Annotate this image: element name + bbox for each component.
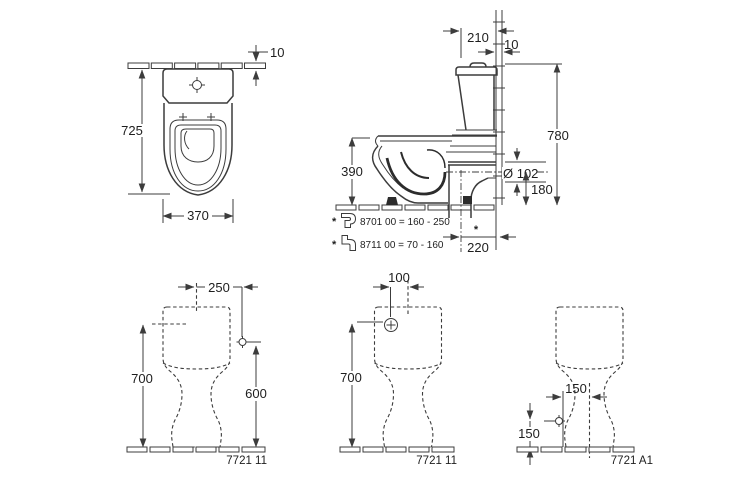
rear-outline-left <box>163 307 230 447</box>
side-dim-rim-height: 390 <box>339 138 370 205</box>
seat-outer-ring <box>170 120 226 191</box>
rear-left-dim-700: 700 <box>131 371 153 386</box>
supply-connection-icon <box>385 319 398 332</box>
floor-tile-strip-middle <box>340 447 454 452</box>
front-dim-height: 725 <box>118 70 170 194</box>
front-dim-370: 370 <box>187 208 209 223</box>
model-number-middle: 7721 11 <box>416 455 457 467</box>
floor-fixing-bracket <box>386 197 398 205</box>
drawing-canvas: 10 725 370 <box>0 0 750 500</box>
wall-tile-strip <box>128 63 266 69</box>
rear-left-dim-600: 600 <box>245 386 267 401</box>
model-number-left: 7721 11 <box>226 455 267 467</box>
note-1-text: 8701 00 = 160 - 250 <box>360 217 450 228</box>
front-dim-10: 10 <box>270 45 284 60</box>
side-dim-180: 180 <box>531 182 553 197</box>
floor-tile-strip-left <box>127 447 265 452</box>
side-dim-outlet-distance: * 220 <box>443 224 516 255</box>
floor-tile-strip-right <box>517 447 634 452</box>
rear-left-dim-250: 250 <box>208 280 230 295</box>
flush-button-icon <box>189 77 205 93</box>
outlet-variant-notes: * 8701 00 = 160 - 250 * 8711 00 = 70 - 1… <box>332 214 450 252</box>
front-view: 10 725 370 <box>118 45 284 223</box>
asterisk-220: * <box>474 224 479 236</box>
side-view: 210 10 780 390 Ø 102 <box>332 10 571 255</box>
side-dim-780: 780 <box>547 128 569 143</box>
rear-views: 250 600 700 7721 11 <box>127 270 653 467</box>
side-dim-10: 10 <box>504 37 518 52</box>
technical-drawing-page: 10 725 370 <box>0 0 750 500</box>
note-2-text: 8711 00 = 70 - 160 <box>360 240 444 251</box>
side-dim-390: 390 <box>341 164 363 179</box>
side-dim-220: 220 <box>467 240 489 255</box>
rear-mid-dim-100: 100 <box>388 270 410 285</box>
pipe-clamp <box>463 196 472 204</box>
outlet-bend-icon <box>342 214 356 228</box>
rear-view-left: 250 600 700 7721 11 <box>127 280 270 467</box>
outlet-bend-icon-2 <box>342 236 356 251</box>
front-cistern-outline <box>163 69 233 103</box>
side-cistern <box>452 63 497 135</box>
rear-outline-middle <box>375 307 442 447</box>
side-seat <box>376 136 498 152</box>
side-dim-102: Ø 102 <box>503 166 538 181</box>
rear-mid-dim-700: 700 <box>340 370 362 385</box>
note-2-marker: * <box>332 239 337 251</box>
front-dim-725: 725 <box>121 123 143 138</box>
front-dim-width: 370 <box>163 199 233 223</box>
rear-right-dim-150-height: 150 <box>518 426 540 441</box>
bowl-water-swirl <box>185 131 189 149</box>
side-bowl <box>373 146 448 205</box>
note-1-marker: * <box>332 216 337 228</box>
rear-right-dim-150-offset: 150 <box>565 381 587 396</box>
model-number-right: 7721 A1 <box>611 455 653 467</box>
side-dim-210: 210 <box>467 30 489 45</box>
supply-point-icon <box>237 336 249 348</box>
rear-view-right: 150 150 7721 A1 <box>516 381 653 467</box>
front-bowl-outline <box>164 103 232 195</box>
